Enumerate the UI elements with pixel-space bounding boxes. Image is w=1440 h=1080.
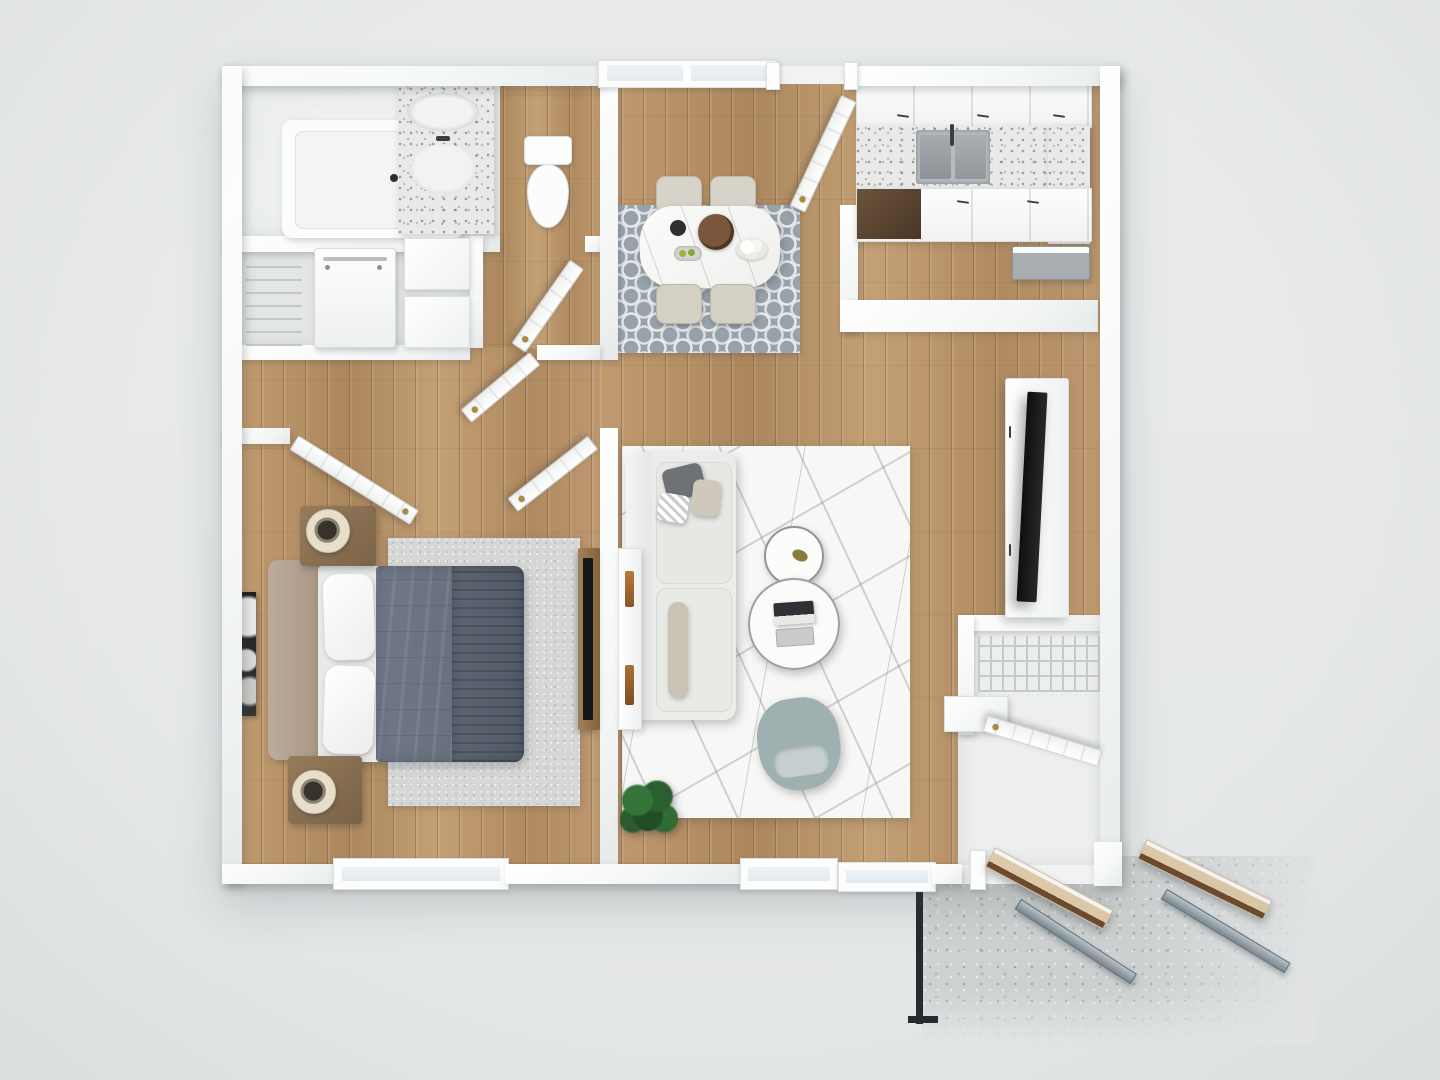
floorplan-scene (0, 0, 1440, 1080)
front-door-jamb (844, 62, 858, 90)
vanity-mirror (407, 93, 479, 131)
front-door-jamb (766, 62, 780, 90)
dishwasher-dark-panel (857, 189, 921, 239)
toilet (522, 136, 572, 230)
wall-south-2 (505, 864, 742, 884)
wall-bathroom-south-right (585, 236, 600, 252)
coffee-table-small (764, 526, 824, 586)
door-knob-icon (521, 335, 529, 343)
linen-shelf-lower (404, 296, 470, 348)
dining-chair (710, 284, 756, 324)
decor-leaf-icon (790, 547, 809, 564)
living-window (740, 858, 838, 890)
sink-faucet-icon (950, 124, 954, 146)
wall-south-3 (932, 864, 962, 884)
dining-table (640, 206, 780, 288)
nightstand-lamp (292, 770, 336, 814)
kitchen-sink (916, 130, 990, 184)
bed-headboard (268, 560, 322, 760)
wall-west (222, 66, 242, 884)
refrigerator (1012, 246, 1090, 280)
washer-knob-icon (325, 265, 330, 270)
wall-kitchen-south (840, 300, 1098, 332)
window-glass (342, 867, 500, 881)
bed-pillow (322, 665, 375, 755)
laundry-wire-shelving (246, 254, 302, 346)
bedroom-tv (583, 558, 593, 720)
flower-vase (736, 238, 768, 260)
accent-chair-cushion (773, 742, 831, 779)
wall-laundry-east (470, 236, 483, 348)
cabinet-handle-icon (957, 200, 969, 204)
washer-control-panel (323, 257, 387, 261)
console-handle-icon (1009, 544, 1011, 556)
wall-north-left (222, 66, 600, 86)
living-credenza (618, 548, 642, 730)
bed-pillow (323, 573, 376, 661)
wall-east (1100, 66, 1120, 848)
small-plate (670, 220, 686, 236)
potted-plant (620, 780, 678, 838)
bathtub-drain-icon (390, 174, 398, 182)
door-knob-icon (401, 507, 409, 515)
sectional-sofa (626, 452, 736, 720)
living-window (838, 862, 936, 892)
door-knob-icon (471, 405, 479, 413)
lime-icon (688, 249, 695, 256)
credenza-art-icon (625, 571, 634, 607)
sink-basin-right (955, 135, 986, 179)
sink-basin-left (920, 135, 951, 179)
window-glass (846, 870, 928, 883)
lumbar-bolster (668, 602, 688, 698)
patio-door-jamb (970, 850, 986, 890)
wall-laundry-south-right (537, 345, 600, 360)
wall-bedroom-living (600, 428, 618, 864)
dining-chair (656, 284, 702, 324)
window-glass (748, 867, 830, 881)
serving-tray (698, 214, 734, 250)
toilet-tank (524, 136, 572, 165)
wall-south-1 (222, 864, 335, 884)
wall-corner-post (1094, 842, 1122, 886)
washer-dryer (314, 248, 396, 348)
bed-throw-blanket (452, 566, 524, 762)
coffee-table-large (748, 578, 840, 670)
coffee-table-tray (775, 627, 814, 648)
entry-closet-wire-shelving (978, 636, 1100, 692)
nightstand-lamp (306, 509, 350, 553)
cabinet-handle-icon (897, 114, 909, 118)
dining-window (598, 60, 776, 88)
wall-hall-dining (600, 66, 618, 360)
patio-railing-foot (908, 1016, 938, 1023)
vanity-sink-basin (410, 144, 476, 194)
throw-pillow-striped (656, 492, 690, 525)
window-glass (691, 65, 767, 81)
coffee-table-books (773, 601, 814, 626)
cabinet-handle-icon (1053, 114, 1065, 118)
credenza-art-icon (625, 665, 634, 705)
bedroom-window (333, 858, 509, 890)
bedroom-wall-art (240, 592, 256, 716)
window-glass (607, 65, 683, 81)
door-knob-icon (992, 723, 999, 730)
throw-pillow-beige (690, 479, 722, 518)
toilet-bowl (527, 164, 569, 228)
console-handle-icon (1009, 426, 1011, 438)
fruit-plate (674, 246, 702, 261)
cabinet-handle-icon (1027, 200, 1039, 204)
cabinet-handle-icon (977, 114, 989, 118)
lime-icon (679, 250, 686, 257)
vanity-faucet-icon (436, 136, 450, 141)
washer-knob-icon (377, 265, 382, 270)
bathroom-vanity (398, 86, 494, 234)
kitchen-upper-cabinets (856, 84, 1092, 128)
door-knob-icon (799, 195, 807, 203)
kitchen-lower-cabinets (856, 188, 1092, 242)
linen-shelf-upper (404, 238, 470, 290)
door-knob-icon (517, 495, 525, 503)
wall-north-right (852, 66, 1120, 86)
